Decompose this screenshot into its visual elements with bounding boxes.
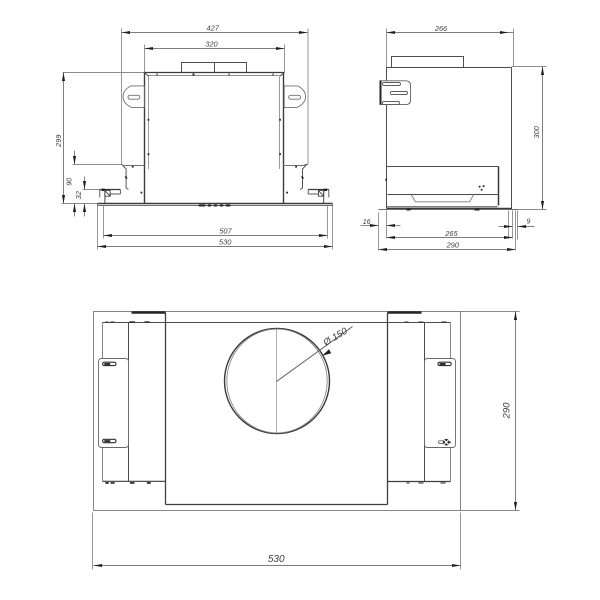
svg-text:265: 265 xyxy=(444,229,458,238)
svg-text:530: 530 xyxy=(268,554,285,565)
svg-text:90: 90 xyxy=(65,177,74,186)
svg-text:9: 9 xyxy=(526,219,530,226)
svg-text:266: 266 xyxy=(434,24,448,33)
svg-text:300: 300 xyxy=(532,125,541,138)
svg-text:427: 427 xyxy=(207,24,220,33)
svg-text:290: 290 xyxy=(446,241,460,250)
svg-text:16: 16 xyxy=(363,219,371,226)
svg-text:507: 507 xyxy=(219,227,232,236)
svg-text:320: 320 xyxy=(205,39,218,48)
svg-text:290: 290 xyxy=(502,402,513,420)
svg-text:Ø 150: Ø 150 xyxy=(321,325,350,349)
svg-text:32: 32 xyxy=(74,191,83,199)
svg-text:299: 299 xyxy=(54,135,63,148)
svg-text:530: 530 xyxy=(219,237,232,246)
